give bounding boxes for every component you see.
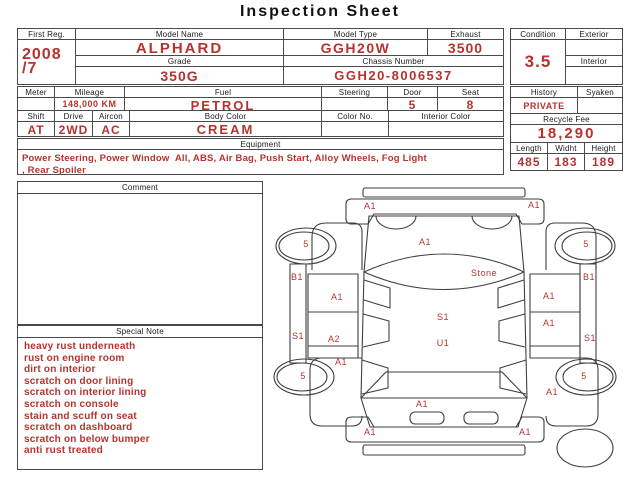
- special-note-label: Special Note: [18, 326, 262, 338]
- steering-label: Steering: [322, 87, 387, 98]
- special-note-line: scratch on console: [24, 399, 256, 411]
- damage-marker: A1: [519, 427, 531, 437]
- length-cell: Length 485: [511, 143, 548, 170]
- interior-label: Interior: [566, 56, 622, 67]
- seat-value: 8: [438, 98, 503, 112]
- drive-cell: Drive 2WD: [55, 111, 93, 137]
- car-damage-diagram: A1A1A1StoneS1U1A1A1A15555B1S1A1A2A1B1S1A…: [268, 180, 640, 480]
- mileage-value: 148,000 KM: [55, 98, 124, 110]
- special-note-box: Special Note heavy rust underneath rust …: [17, 325, 263, 470]
- grade-label: Grade: [76, 56, 283, 67]
- grade-cell: Grade 350G: [76, 56, 283, 84]
- meter-cell: Meter: [18, 87, 55, 110]
- damage-marker: A1: [419, 237, 431, 247]
- door-value: 5: [388, 98, 437, 112]
- damage-marker: S1: [292, 331, 304, 341]
- equipment-table: Equipment Power Steering, Power Window A…: [17, 138, 504, 175]
- shift-label: Shift: [18, 111, 54, 122]
- special-note-line: heavy rust underneath: [24, 341, 256, 353]
- aircon-cell: Aircon AC: [93, 111, 130, 137]
- mileage-cell: Mileage 148,000 KM: [55, 87, 125, 110]
- height-label: Height: [585, 143, 622, 154]
- recycle-fee-value: 18,290: [511, 125, 622, 142]
- interior-color-cell: Interior Color: [389, 111, 503, 137]
- drive-label: Drive: [55, 111, 92, 122]
- damage-marker: Stone: [471, 268, 497, 278]
- length-value: 485: [511, 154, 547, 170]
- history-table: History PRIVATE Syaken Recycle Fee 18,29…: [510, 86, 623, 171]
- page-title: Inspection Sheet: [0, 3, 640, 21]
- height-value: 189: [585, 154, 622, 170]
- comment-label: Comment: [18, 182, 262, 194]
- damage-marker: A1: [416, 399, 428, 409]
- damage-marker: S1: [584, 333, 596, 343]
- special-note-line: scratch on below bumper: [24, 434, 256, 446]
- interior-cell: Interior: [566, 56, 622, 84]
- special-note-list: heavy rust underneath rust on engine roo…: [18, 338, 262, 469]
- exhaust-value: 3500: [428, 40, 503, 56]
- ext-int-column: Exterior Interior: [566, 29, 622, 84]
- chassis-cell: Chassis Number GGH20-8006537: [284, 56, 503, 84]
- model-type-cell: Model Type GGH20W: [284, 29, 428, 55]
- history-value: PRIVATE: [511, 98, 577, 113]
- color-no-value: [322, 122, 388, 137]
- fuel-label: Fuel: [125, 87, 321, 98]
- chassis-value: GGH20-8006537: [284, 67, 503, 84]
- width-value: 183: [548, 154, 584, 170]
- damage-marker: 5: [581, 371, 587, 381]
- type-exhaust-row: Model Type GGH20W Exhaust 3500: [284, 29, 503, 56]
- model-grade-column: Model Name ALPHARD Grade 350G: [76, 29, 284, 84]
- damage-marker: 5: [583, 239, 589, 249]
- damage-marker: A1: [546, 387, 558, 397]
- interior-value: [566, 67, 622, 84]
- damage-marker: A1: [364, 427, 376, 437]
- condition-table: Condition 3.5 Exterior Interior: [510, 28, 623, 85]
- specs-table: Meter Mileage 148,000 KM Fuel PETROL Ste…: [17, 86, 504, 137]
- special-note-line: anti rust treated: [24, 445, 256, 457]
- door-label: Door: [388, 87, 437, 98]
- model-name-value: ALPHARD: [76, 40, 283, 57]
- comment-value: [18, 194, 262, 324]
- damage-marker: 5: [300, 371, 306, 381]
- damage-marker: U1: [437, 338, 450, 348]
- color-no-cell: Color No.: [322, 111, 389, 137]
- comment-box: Comment: [17, 181, 263, 325]
- door-cell: Door 5: [388, 87, 438, 110]
- damage-marker: 5: [303, 239, 309, 249]
- vehicle-info-table: First Reg. 2008 /7 Model Name ALPHARD Gr…: [17, 28, 504, 85]
- history-label: History: [511, 87, 577, 98]
- syaken-label: Syaken: [578, 87, 622, 98]
- exhaust-label: Exhaust: [428, 29, 503, 40]
- meter-value: [18, 98, 54, 110]
- special-note-line: stain and scuff on seat: [24, 411, 256, 423]
- steering-value: [322, 98, 387, 110]
- body-color-cell: Body Color CREAM: [130, 111, 322, 137]
- length-label: Length: [511, 143, 547, 154]
- syaken-cell: Syaken: [578, 87, 622, 113]
- width-label: Widht: [548, 143, 584, 154]
- interior-color-label: Interior Color: [389, 111, 503, 122]
- steering-cell: Steering: [322, 87, 388, 110]
- recycle-fee-label: Recycle Fee: [511, 114, 622, 125]
- recycle-fee-cell: Recycle Fee 18,290: [511, 114, 622, 143]
- dimensions-row: Length 485 Widht 183 Height 189: [511, 143, 622, 170]
- specs-row-2: Shift AT Drive 2WD Aircon AC Body Color …: [18, 111, 503, 137]
- damage-marker: A1: [543, 291, 555, 301]
- equipment-value: Power Steering, Power Window All, ABS, A…: [18, 150, 503, 176]
- seat-cell: Seat 8: [438, 87, 503, 110]
- exterior-value: [566, 40, 622, 55]
- body-color-value: CREAM: [130, 122, 321, 137]
- damage-marker: A1: [543, 318, 555, 328]
- fuel-cell: Fuel PETROL: [125, 87, 322, 110]
- condition-cell: Condition 3.5: [511, 29, 566, 84]
- type-chassis-column: Model Type GGH20W Exhaust 3500 Chassis N…: [284, 29, 503, 84]
- damage-marker: A1: [331, 292, 343, 302]
- chassis-label: Chassis Number: [284, 56, 503, 67]
- condition-label: Condition: [511, 29, 565, 40]
- damage-marker: A2: [328, 334, 340, 344]
- meter-label: Meter: [18, 87, 54, 98]
- mileage-label: Mileage: [55, 87, 124, 98]
- shift-cell: Shift AT: [18, 111, 55, 137]
- special-note-line: scratch on dashboard: [24, 422, 256, 434]
- special-note-line: dirt on interior: [24, 364, 256, 376]
- first-reg-label: First Reg.: [18, 29, 75, 40]
- aircon-value: AC: [93, 122, 129, 137]
- history-cell: History PRIVATE: [511, 87, 578, 113]
- exhaust-cell: Exhaust 3500: [428, 29, 503, 55]
- drive-value: 2WD: [55, 122, 92, 137]
- first-reg-cell: First Reg. 2008 /7: [18, 29, 76, 84]
- damage-marker: A1: [335, 357, 347, 367]
- condition-value: 3.5: [511, 40, 565, 84]
- damage-marker-layer: A1A1A1StoneS1U1A1A1A15555B1S1A1A2A1B1S1A…: [268, 180, 640, 480]
- grade-value: 350G: [76, 67, 283, 84]
- seat-label: Seat: [438, 87, 503, 98]
- damage-marker: A1: [364, 201, 376, 211]
- special-note-line: scratch on door lining: [24, 376, 256, 388]
- history-row: History PRIVATE Syaken: [511, 87, 622, 114]
- model-type-value: GGH20W: [284, 40, 427, 56]
- exterior-cell: Exterior: [566, 29, 622, 56]
- inspection-sheet: Inspection Sheet First Reg. 2008 /7 Mode…: [0, 0, 640, 480]
- damage-marker: B1: [291, 272, 303, 282]
- model-name-cell: Model Name ALPHARD: [76, 29, 283, 56]
- equipment-label: Equipment: [18, 139, 503, 150]
- first-reg-value: 2008 /7: [18, 40, 75, 84]
- exterior-label: Exterior: [566, 29, 622, 40]
- syaken-value: [578, 98, 622, 113]
- damage-marker: B1: [583, 272, 595, 282]
- width-cell: Widht 183: [548, 143, 585, 170]
- model-name-label: Model Name: [76, 29, 283, 40]
- specs-row-1: Meter Mileage 148,000 KM Fuel PETROL Ste…: [18, 87, 503, 111]
- special-note-line: rust on engine room: [24, 353, 256, 365]
- model-type-label: Model Type: [284, 29, 427, 40]
- damage-marker: S1: [437, 312, 449, 322]
- height-cell: Height 189: [585, 143, 622, 170]
- color-no-label: Color No.: [322, 111, 388, 122]
- shift-value: AT: [18, 122, 54, 137]
- damage-marker: A1: [528, 200, 540, 210]
- body-color-label: Body Color: [130, 111, 321, 122]
- interior-color-value: [389, 122, 503, 137]
- special-note-line: scratch on interior lining: [24, 387, 256, 399]
- aircon-label: Aircon: [93, 111, 129, 122]
